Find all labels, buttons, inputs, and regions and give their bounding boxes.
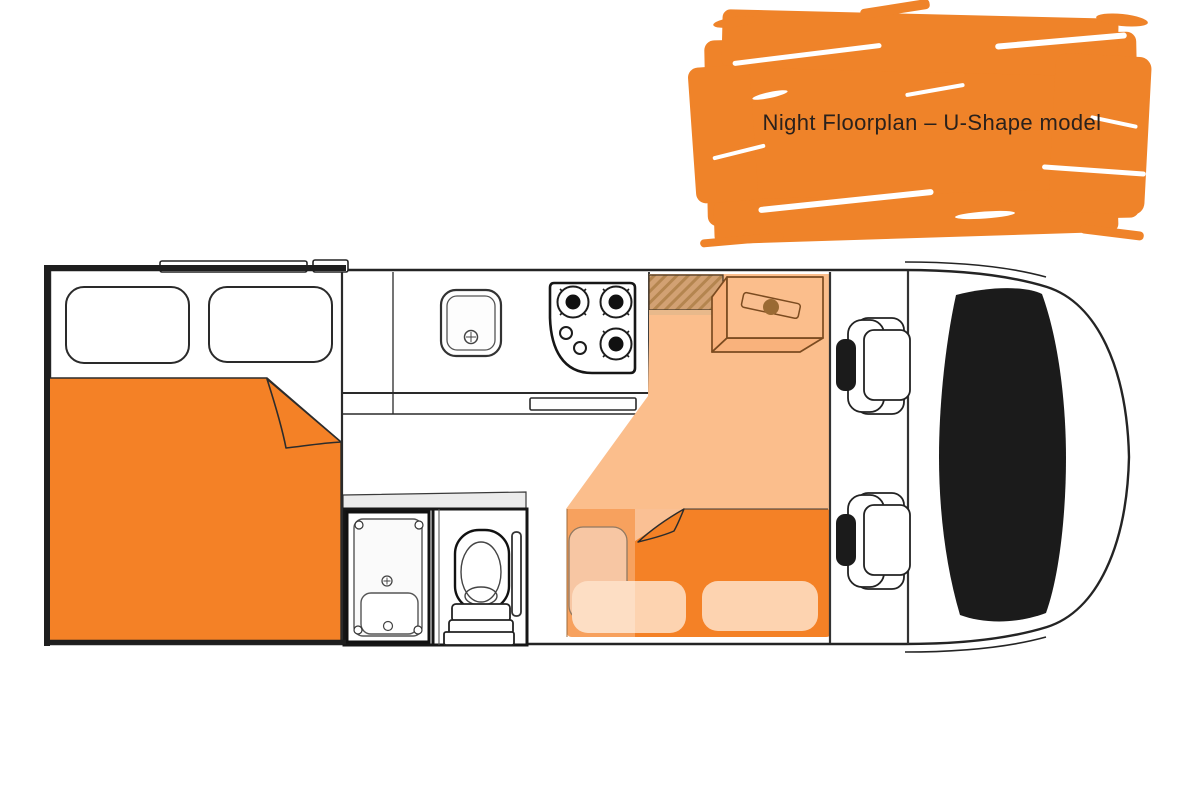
rear-window-left	[66, 287, 189, 363]
stove	[550, 283, 635, 373]
dinette-light-wash	[567, 509, 635, 637]
kitchen-drawer	[530, 398, 636, 410]
floorplan-image: Night Floorplan – U-Shape model	[0, 0, 1180, 787]
banner-title: Night Floorplan – U-Shape model	[763, 110, 1102, 135]
kitchen-sink	[441, 290, 501, 356]
seat-armrest	[836, 514, 856, 566]
overhead-cabinet	[712, 277, 823, 352]
seat-armrest	[836, 339, 856, 391]
dinette-pillow-right	[702, 581, 818, 631]
burner-icon	[601, 287, 632, 318]
rear-window-right	[209, 287, 332, 362]
dinette-bed-group	[567, 509, 831, 637]
shower	[347, 512, 429, 642]
windshield	[939, 288, 1066, 621]
cabinet-knob	[763, 299, 779, 315]
shower-drain	[384, 622, 393, 631]
burner-icon	[558, 287, 589, 318]
stove-knob	[574, 342, 586, 354]
toilet-base	[444, 632, 514, 645]
burner-icon	[601, 329, 632, 360]
stove-knob	[560, 327, 572, 339]
toilet-side-panel	[512, 532, 521, 616]
floorplan-canvas: Night Floorplan – U-Shape model	[0, 0, 1180, 787]
banner-brush: Night Floorplan – U-Shape model	[687, 0, 1152, 248]
bathroom	[343, 492, 527, 645]
